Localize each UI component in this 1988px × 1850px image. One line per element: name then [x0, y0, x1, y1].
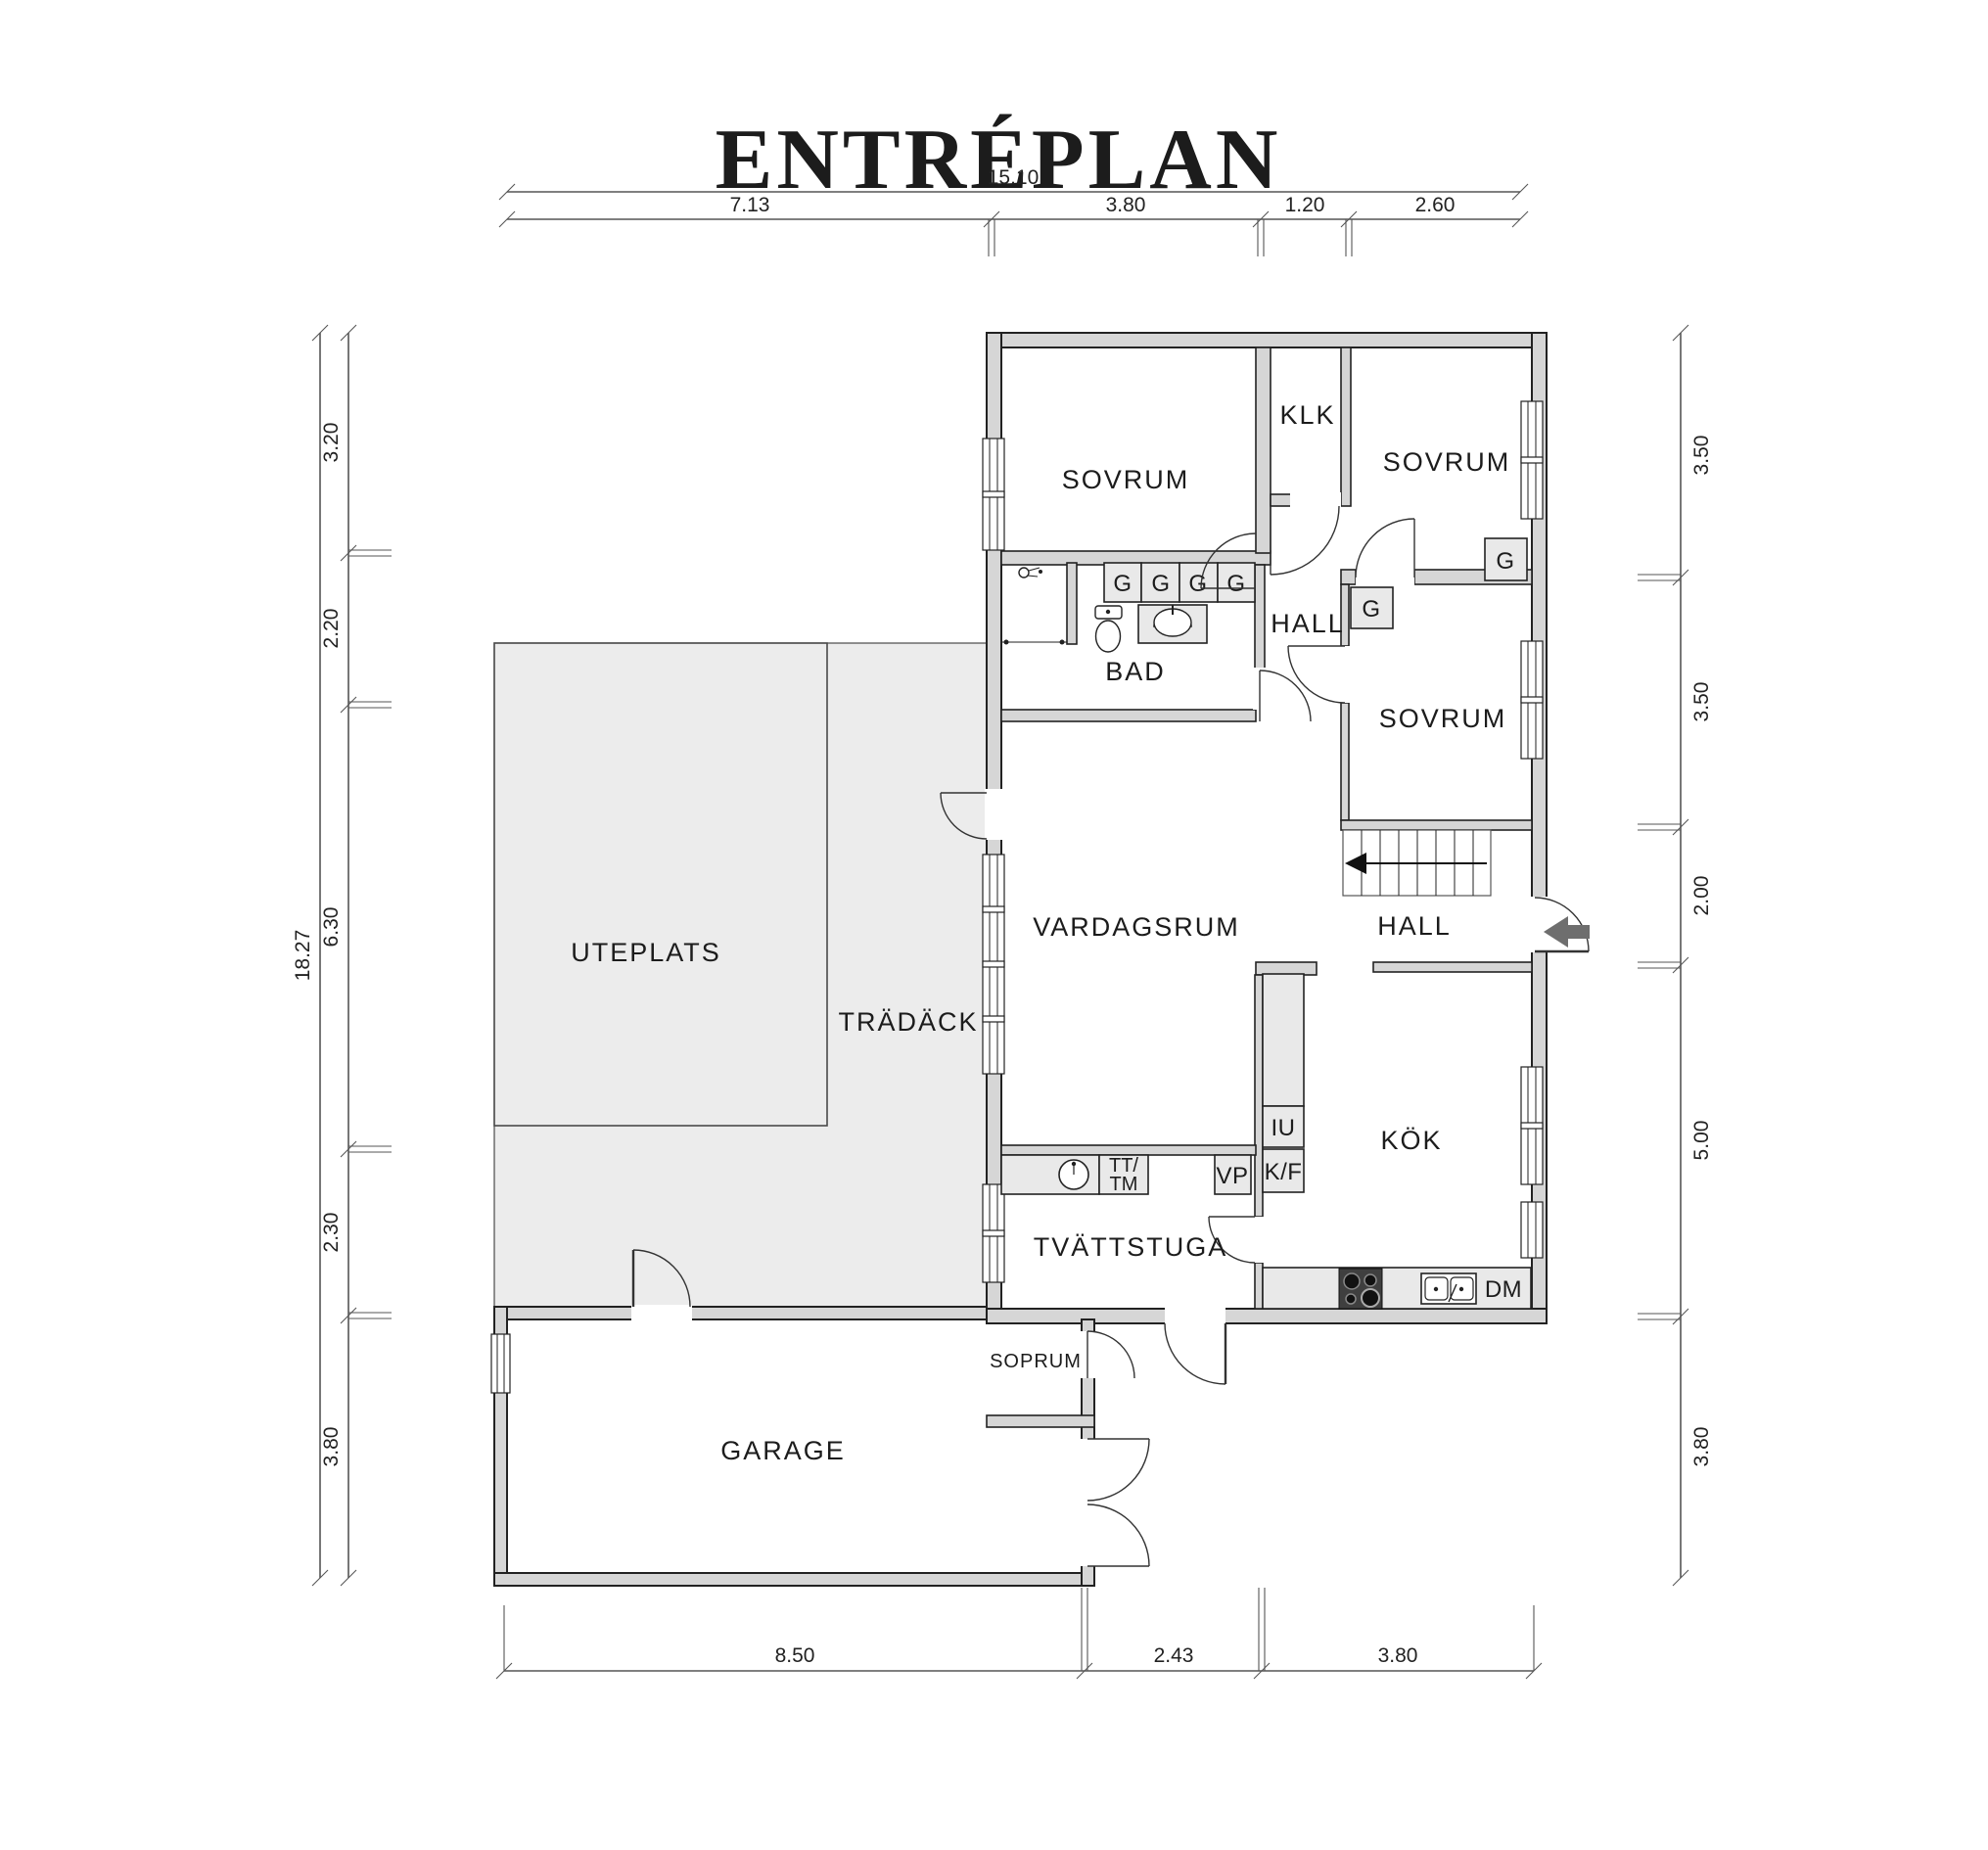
dim-right: 3.50 3.50 2.00 5.00 3.80	[1638, 325, 1713, 1586]
heat-pump-label: VP	[1216, 1163, 1248, 1189]
kitchen-cabinet	[1263, 974, 1304, 1106]
dim-left-seg-3: 2.30	[320, 1213, 343, 1253]
wardrobe-label: G	[1151, 571, 1170, 597]
stairs	[1343, 830, 1491, 896]
laundry-sink-icon	[1059, 1160, 1088, 1189]
dim-right-seg-1: 3.50	[1690, 682, 1713, 722]
door-garage-double-1	[1087, 1439, 1149, 1501]
door-klk	[1271, 506, 1339, 575]
shower-room	[1001, 563, 1077, 645]
window-sovrum2	[1521, 401, 1543, 519]
door-bad	[1260, 671, 1311, 721]
dishwasher-label: DM	[1485, 1276, 1522, 1303]
dim-top: 15.10 7.13 3.80 1.20 2.60	[499, 166, 1528, 256]
dim-left-total: 18.27	[292, 930, 314, 982]
door-garage-double-2	[1087, 1504, 1149, 1566]
entry-arrow-icon	[1544, 916, 1590, 948]
window-sovrum3	[1521, 641, 1543, 759]
room-label-kok: KÖK	[1380, 1126, 1442, 1155]
dim-right-seg-2: 2.00	[1690, 876, 1713, 916]
wardrobe-label: G	[1188, 571, 1207, 597]
dim-right-seg-0: 3.50	[1690, 436, 1713, 476]
dim-left: 18.27 3.20 2.20 6.30 2.30 3.80	[292, 325, 392, 1586]
floorplan-page: ENTRÉPLAN UTEPLATS TRÄDÄCK	[0, 0, 1988, 1850]
deck-area: UTEPLATS TRÄDÄCK	[494, 643, 987, 1307]
room-label-bad: BAD	[1105, 657, 1166, 686]
stove-icon	[1339, 1269, 1382, 1309]
wardrobe-label: G	[1113, 571, 1132, 597]
kitchen-sink-icon	[1421, 1273, 1476, 1304]
room-label-hall-lower: HALL	[1377, 911, 1452, 941]
dim-right-seg-3: 5.00	[1690, 1121, 1713, 1161]
window-kok-1	[1521, 1067, 1543, 1184]
window-sovrum1	[983, 439, 1004, 550]
floorplan-svg: ENTRÉPLAN UTEPLATS TRÄDÄCK	[0, 0, 1988, 1850]
oven-label: IU	[1271, 1115, 1296, 1141]
dim-right-seg-4: 3.80	[1690, 1427, 1713, 1467]
room-label-sovrum3: SOVRUM	[1379, 704, 1507, 733]
washer-dryer-label-2: TM	[1110, 1174, 1138, 1195]
door-sovrum3	[1288, 646, 1345, 703]
dim-left-seg-2: 6.30	[320, 907, 343, 948]
dim-left-seg-4: 3.80	[320, 1427, 343, 1467]
wardrobe-row: G G G G	[1104, 563, 1255, 602]
room-label-uteplats: UTEPLATS	[571, 938, 721, 967]
dim-top-total: 15.10	[988, 166, 1040, 189]
dim-left-seg-1: 2.20	[320, 609, 343, 649]
dim-top-seg-3: 2.60	[1415, 194, 1456, 216]
window-garage	[491, 1334, 510, 1393]
room-label-sovrum1: SOVRUM	[1062, 465, 1190, 494]
room-label-tvattstuga: TVÄTTSTUGA	[1034, 1232, 1228, 1262]
dim-bottom-seg-1: 2.43	[1154, 1644, 1194, 1667]
room-label-klk: KLK	[1279, 400, 1335, 430]
room-label-garage: GARAGE	[720, 1436, 846, 1465]
page-title: ENTRÉPLAN	[716, 113, 1282, 208]
wardrobe-label: G	[1362, 596, 1380, 623]
window-vardagsrum	[983, 855, 1004, 1074]
room-label-hall-upper: HALL	[1271, 609, 1345, 638]
dim-bottom-seg-0: 8.50	[775, 1644, 815, 1667]
bath-sink-icon	[1138, 605, 1207, 643]
uteplats-area	[494, 643, 827, 1126]
window-tvattstuga	[983, 1184, 1004, 1282]
wardrobe-label: G	[1496, 548, 1514, 575]
room-label-vardagsrum: VARDAGSRUM	[1033, 912, 1240, 942]
room-label-soprum: SOPRUM	[990, 1351, 1082, 1372]
shower-head-icon	[1019, 568, 1042, 578]
toilet-icon	[1095, 606, 1122, 652]
fridge-freezer-label: K/F	[1265, 1159, 1303, 1185]
dim-top-seg-2: 1.20	[1285, 194, 1325, 216]
wardrobe-label: G	[1226, 571, 1245, 597]
dim-top-seg-1: 3.80	[1106, 194, 1146, 216]
room-label-tradack: TRÄDÄCK	[838, 1007, 978, 1037]
window-kok-2	[1521, 1202, 1543, 1258]
room-label-sovrum2: SOVRUM	[1383, 447, 1511, 477]
dim-bottom-seg-2: 3.80	[1378, 1644, 1418, 1667]
door-tvatt-exterior	[1165, 1323, 1225, 1384]
dim-bottom: 8.50 2.43 3.80	[496, 1588, 1542, 1679]
dim-top-seg-0: 7.13	[730, 194, 770, 216]
dim-left-seg-0: 3.20	[320, 423, 343, 463]
